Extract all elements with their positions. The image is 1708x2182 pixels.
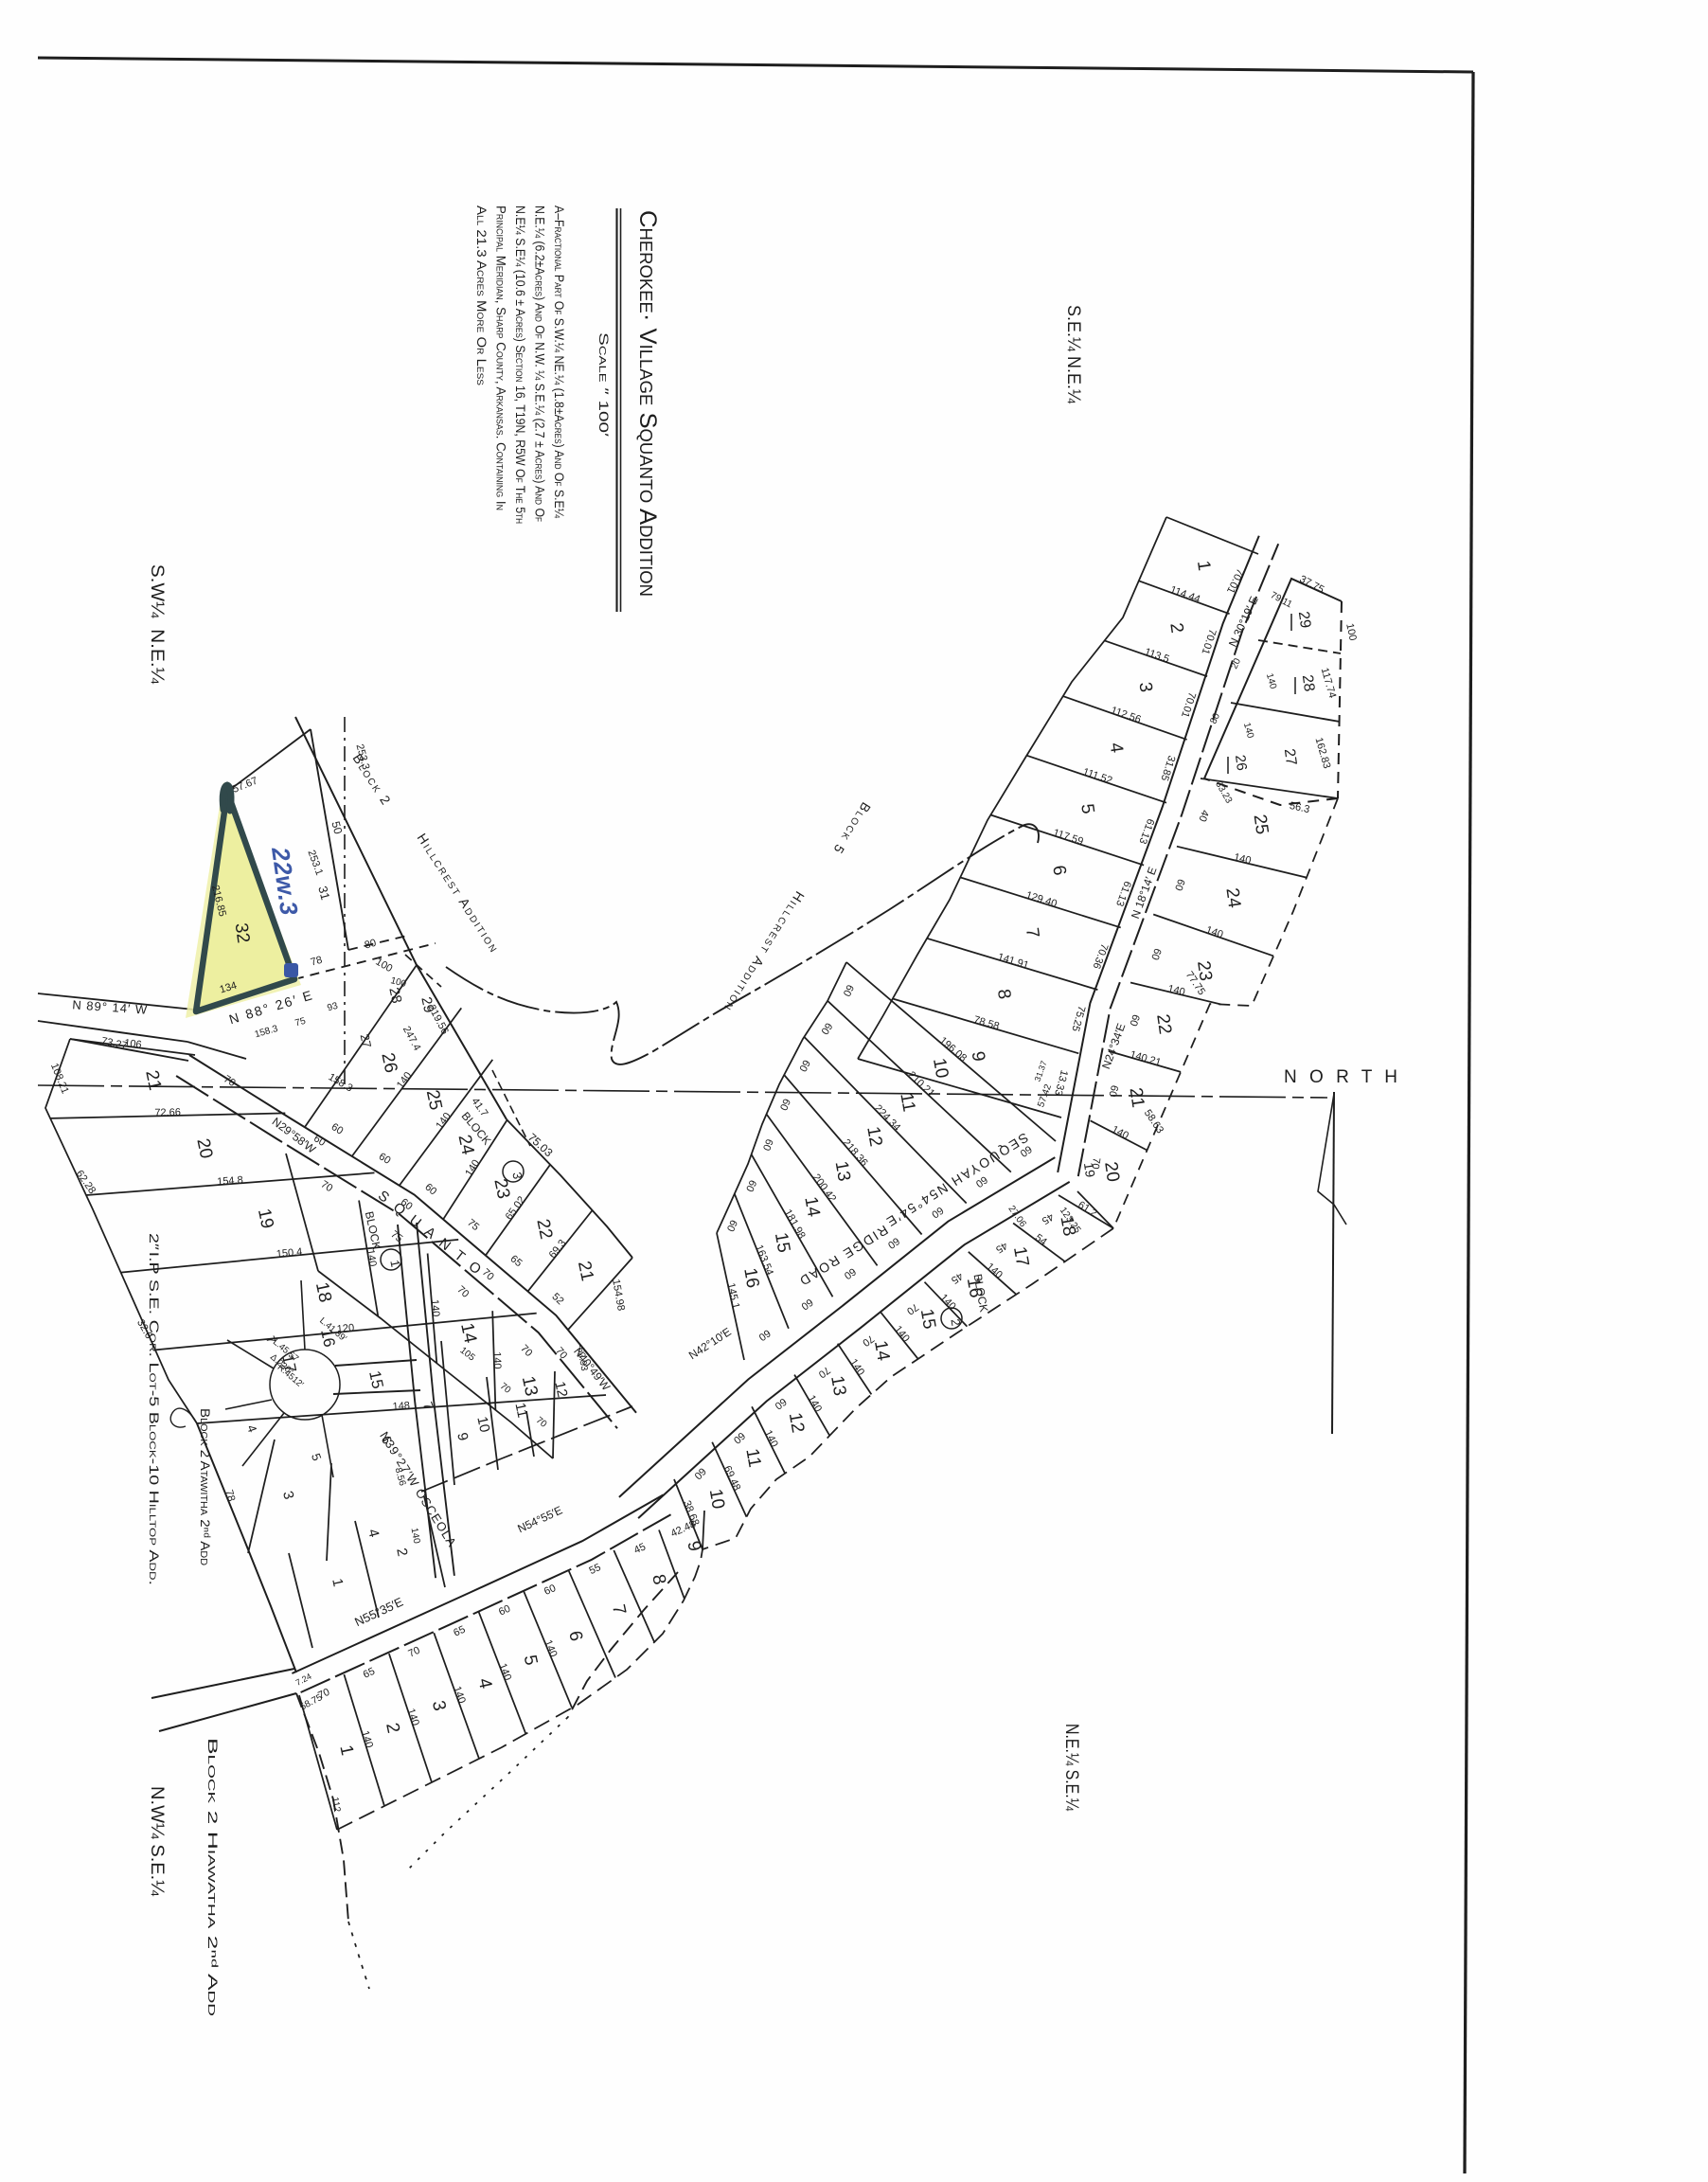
svg-text:17: 17 [1009,1245,1032,1268]
svg-text:60: 60 [841,983,856,998]
svg-text:140: 140 [463,1158,482,1179]
svg-text:70: 70 [534,1415,549,1430]
svg-text:2″ I.P S.E. Cor. Lot-5 Block-1: 2″ I.P S.E. Cor. Lot-5 Block-10 Hilltop … [147,1233,161,1585]
svg-text:10: 10 [705,1488,728,1511]
svg-text:70: 70 [454,1284,471,1300]
svg-text:219.56: 219.56 [425,1003,450,1036]
svg-text:Block 2 Hiawatha 2ⁿᵈ Add: Block 2 Hiawatha 2ⁿᵈ Add [205,1738,221,2016]
svg-text:13: 13 [831,1160,854,1183]
svg-text:75: 75 [465,1217,481,1233]
svg-text:148: 148 [392,1400,410,1412]
svg-text:112.56: 112.56 [1110,705,1143,725]
svg-text:140: 140 [359,1729,375,1749]
svg-text:70: 70 [518,1343,534,1359]
svg-text:12: 12 [863,1125,885,1148]
svg-text:60: 60 [799,1296,815,1312]
svg-text:N 18°14′ E: N 18°14′ E [1129,865,1160,920]
svg-text:111.52: 111.52 [1081,766,1113,787]
svg-text:18: 18 [311,1280,335,1304]
svg-text:150.4: 150.4 [276,1246,303,1261]
svg-text:162.83: 162.83 [1312,736,1332,770]
svg-text:57.67: 57.67 [231,775,259,795]
svg-text:25: 25 [422,1088,446,1112]
svg-text:3: 3 [428,1699,450,1713]
svg-text:9: 9 [683,1539,704,1553]
svg-text:8: 8 [993,988,1014,1000]
svg-text:60: 60 [724,1218,739,1233]
svg-text:Block 2: Block 2 [349,751,394,809]
svg-text:2: 2 [948,1317,963,1327]
svg-text:247.4: 247.4 [400,1025,423,1053]
svg-text:70: 70 [406,1645,421,1660]
svg-text:22: 22 [1152,1013,1175,1036]
svg-text:70.36: 70.36 [1091,942,1111,971]
svg-text:50: 50 [329,820,345,836]
svg-text:14: 14 [456,1321,480,1345]
svg-text:26: 26 [377,1051,400,1075]
svg-text:6: 6 [1048,864,1069,876]
svg-text:14: 14 [800,1195,823,1219]
svg-text:7.24: 7.24 [294,1672,313,1688]
svg-text:60: 60 [842,1265,858,1281]
svg-text:23: 23 [489,1177,513,1201]
svg-text:A–Fractional Part Of S.W.¼ NE.: A–Fractional Part Of S.W.¼ NE.¼ (1.8±Acr… [552,206,566,519]
svg-text:140: 140 [405,1708,421,1727]
svg-text:60: 60 [329,1121,346,1137]
svg-text:60: 60 [818,1020,834,1036]
svg-text:75: 75 [294,1016,307,1029]
svg-text:140: 140 [491,1351,504,1369]
svg-text:45: 45 [632,1541,648,1556]
svg-text:60: 60 [1172,877,1186,891]
svg-text:N42°10′E: N42°10′E [686,1325,734,1362]
svg-text:65: 65 [362,1666,377,1681]
svg-text:54: 54 [1033,1232,1049,1248]
svg-text:2: 2 [393,1547,410,1558]
svg-text:60: 60 [497,1603,512,1619]
svg-text:70.01: 70.01 [1200,628,1219,656]
svg-text:11: 11 [741,1447,764,1469]
svg-text:60: 60 [756,1327,773,1343]
svg-text:61.2: 61.2 [1076,1199,1099,1219]
svg-text:13.33: 13.33 [1052,1068,1070,1097]
svg-text:28: 28 [1299,673,1317,692]
svg-text:10: 10 [473,1415,492,1434]
svg-text:60: 60 [773,1395,789,1411]
svg-text:Hillcrest Addition: Hillcrest Addition [414,831,503,956]
svg-text:N.E.¼ S.E.¼: N.E.¼ S.E.¼ [1061,1724,1081,1812]
svg-text:140: 140 [451,1685,468,1705]
svg-text:19: 19 [254,1207,277,1230]
svg-text:S.E.¼ N.E.¼: S.E.¼ N.E.¼ [1063,305,1083,404]
svg-text:32: 32 [231,921,254,944]
svg-text:4: 4 [1106,742,1127,755]
svg-text:22w.3: 22w.3 [266,845,304,918]
svg-text:60: 60 [543,1583,558,1598]
svg-text:21: 21 [574,1260,597,1283]
svg-text:140: 140 [542,1638,559,1659]
svg-text:60: 60 [1148,947,1163,961]
svg-text:19: 19 [1081,1161,1098,1178]
svg-text:65: 65 [507,1253,524,1269]
svg-text:253.1: 253.1 [305,849,325,877]
svg-text:60: 60 [796,1058,811,1073]
svg-text:27: 27 [1281,747,1299,766]
svg-text:1: 1 [387,1259,402,1268]
svg-text:All 21.3 Acres More Or Less: All 21.3 Acres More Or Less [474,206,489,385]
svg-text:140: 140 [1233,851,1253,867]
svg-text:1: 1 [335,1744,357,1758]
svg-text:12: 12 [785,1411,808,1434]
svg-text:78: 78 [223,1489,238,1503]
svg-text:73.27: 73.27 [100,1035,128,1051]
svg-text:24: 24 [454,1133,478,1156]
svg-text:42.48: 42.48 [669,1518,698,1539]
svg-text:45: 45 [949,1270,965,1286]
svg-text:21: 21 [141,1068,165,1092]
svg-text:5: 5 [309,1451,325,1462]
svg-text:100: 100 [374,957,395,975]
svg-text:N55°35′E: N55°35′E [352,1594,405,1629]
svg-text:Block 2 Atawitha 2ⁿᵈ Add: Block 2 Atawitha 2ⁿᵈ Add [198,1408,213,1565]
svg-text:60: 60 [743,1178,758,1193]
svg-text:20: 20 [1229,656,1243,671]
svg-text:7: 7 [1022,926,1042,939]
svg-text:N.E¼ S.E¼ (10.6 ± Acres) Secti: N.E¼ S.E¼ (10.6 ± Acres) Section 16, T19… [513,206,527,524]
svg-text:140: 140 [847,1357,866,1378]
svg-text:140: 140 [434,1111,454,1132]
svg-text:61.13: 61.13 [1136,817,1156,846]
svg-text:140: 140 [937,1292,957,1313]
svg-text:13: 13 [827,1374,849,1397]
svg-text:7: 7 [608,1602,630,1617]
svg-text:75: 75 [388,1228,404,1244]
svg-text:5: 5 [1076,802,1097,814]
svg-text:65: 65 [452,1624,467,1639]
svg-text:70: 70 [553,1345,569,1361]
svg-text:2: 2 [1165,621,1186,634]
svg-text:S.W¼ N.E.¼: S.W¼ N.E.¼ [147,563,167,685]
svg-text:145.1: 145.1 [725,1282,742,1310]
svg-text:70: 70 [498,1381,513,1396]
svg-text:1: 1 [329,1577,346,1588]
svg-text:80: 80 [1208,711,1222,725]
svg-text:80: 80 [364,938,378,952]
svg-text:129.40: 129.40 [1024,889,1059,910]
svg-text:78: 78 [310,955,324,969]
svg-text:24: 24 [1221,886,1244,909]
svg-text:N.E.¼ (6.2±Acres) And Of N.W.: N.E.¼ (6.2±Acres) And Of N.W. ¼ S.E.¼ (2… [533,206,547,522]
svg-text:21: 21 [1126,1086,1148,1109]
svg-text:Block 5: Block 5 [829,799,874,857]
svg-text:3: 3 [1134,681,1155,693]
svg-text:140: 140 [365,1248,379,1267]
svg-text:13: 13 [518,1374,542,1398]
svg-text:60: 60 [1127,1013,1141,1028]
svg-text:5: 5 [520,1654,542,1668]
svg-text:1: 1 [1193,560,1214,572]
svg-text:29: 29 [1295,610,1313,629]
svg-text:N 89° 14′ W: N 89° 14′ W [72,997,149,1017]
svg-text:2: 2 [382,1721,403,1735]
svg-text:9: 9 [968,1050,988,1063]
svg-text:20: 20 [1100,1160,1123,1183]
svg-text:31.37: 31.37 [1033,1060,1049,1083]
svg-text:140: 140 [429,1299,441,1317]
svg-text:31.85: 31.85 [1158,754,1177,782]
svg-text:113.5: 113.5 [1143,646,1170,665]
svg-text:N54°55′E: N54°55′E [516,1503,565,1535]
svg-text:72.66: 72.66 [154,1107,181,1119]
svg-text:69.3: 69.3 [547,1238,569,1261]
svg-text:4: 4 [365,1528,383,1539]
svg-text:3: 3 [509,1171,525,1180]
svg-text:37.75: 37.75 [1297,574,1325,597]
svg-text:70.01: 70.01 [1224,566,1246,595]
svg-text:10: 10 [929,1057,952,1080]
svg-text:Cherokee· Village Squanto Ad: Cherokee· Village Squanto Addition [634,210,661,597]
svg-text:140: 140 [395,1070,415,1091]
svg-text:140: 140 [806,1393,825,1414]
svg-text:56.3: 56.3 [1289,800,1310,815]
svg-text:27: 27 [358,1032,375,1048]
svg-text:N.W¼ S.E.¼: N.W¼ S.E.¼ [147,1786,167,1897]
svg-text:62.28: 62.28 [74,1169,98,1196]
svg-text:79.11: 79.11 [1269,590,1294,610]
svg-text:52: 52 [549,1291,565,1307]
svg-text:140: 140 [892,1324,912,1345]
svg-text:45: 45 [1040,1210,1056,1226]
svg-text:61.13: 61.13 [1113,880,1133,908]
svg-text:140: 140 [409,1527,422,1545]
svg-text:154.8: 154.8 [217,1174,243,1188]
svg-text:140: 140 [1166,983,1186,998]
svg-text:26: 26 [1232,754,1250,772]
svg-text:6: 6 [564,1629,586,1643]
svg-text:N O R T H: N O R T H [1284,1067,1401,1087]
svg-text:140: 140 [1264,672,1278,690]
svg-text:15: 15 [365,1369,387,1390]
svg-text:158.3: 158.3 [254,1024,280,1041]
svg-text:100: 100 [1343,622,1359,641]
svg-text:140: 140 [984,1261,1005,1280]
svg-text:60: 60 [1106,1084,1120,1099]
svg-text:154.98: 154.98 [610,1279,627,1312]
svg-text:31: 31 [315,885,332,902]
svg-text:4: 4 [474,1676,496,1690]
svg-text:20: 20 [192,1136,216,1160]
svg-text:N40°49′W: N40°49′W [571,1345,614,1393]
svg-text:140: 140 [496,1662,513,1682]
svg-text:Hillcrest Addition: Hillcrest Addition [721,888,808,1015]
svg-text:N24°34′E: N24°34′E [1099,1022,1128,1071]
svg-text:117.74: 117.74 [1319,667,1339,700]
svg-text:140: 140 [1204,924,1224,940]
svg-text:105: 105 [458,1346,477,1364]
svg-text:16: 16 [739,1266,762,1289]
svg-text:15: 15 [771,1231,793,1254]
svg-text:9: 9 [454,1431,471,1442]
svg-text:11: 11 [896,1092,918,1114]
svg-text:3: 3 [279,1490,297,1501]
svg-text:140.21: 140.21 [1129,1049,1163,1069]
svg-text:60: 60 [930,1204,946,1220]
svg-text:18: 18 [1056,1214,1078,1237]
svg-text:114.44: 114.44 [1168,584,1201,606]
svg-text:8: 8 [648,1573,669,1587]
svg-text:40: 40 [1196,809,1210,824]
svg-text:78.58: 78.58 [972,1014,1001,1032]
svg-text:141.91: 141.91 [996,952,1030,972]
svg-text:4: 4 [244,1422,260,1434]
svg-text:58.63: 58.63 [1142,1108,1165,1136]
svg-text:140: 140 [1241,722,1255,740]
svg-text:117.59: 117.59 [1052,827,1085,848]
svg-text:45: 45 [993,1240,1009,1256]
svg-text:Scale ″ 100′: Scale ″ 100′ [596,332,612,438]
svg-text:Principal Meridian, Sharp Coun: Principal Meridian, Sharp County, Arkans… [494,206,508,510]
svg-text:93: 93 [326,1001,339,1014]
svg-text:60: 60 [377,1151,393,1167]
svg-text:65.02: 65.02 [504,1194,528,1222]
svg-text:60: 60 [760,1137,774,1153]
svg-text:60: 60 [422,1181,438,1197]
svg-text:70.01: 70.01 [1179,690,1198,719]
svg-text:58.75: 58.75 [298,1692,325,1713]
svg-text:55: 55 [587,1562,602,1577]
svg-text:12: 12 [551,1380,570,1399]
svg-text:70: 70 [319,1179,335,1195]
svg-text:60: 60 [777,1097,792,1112]
svg-text:22: 22 [532,1217,556,1241]
svg-text:140: 140 [762,1428,780,1449]
svg-text:25: 25 [1250,814,1272,836]
